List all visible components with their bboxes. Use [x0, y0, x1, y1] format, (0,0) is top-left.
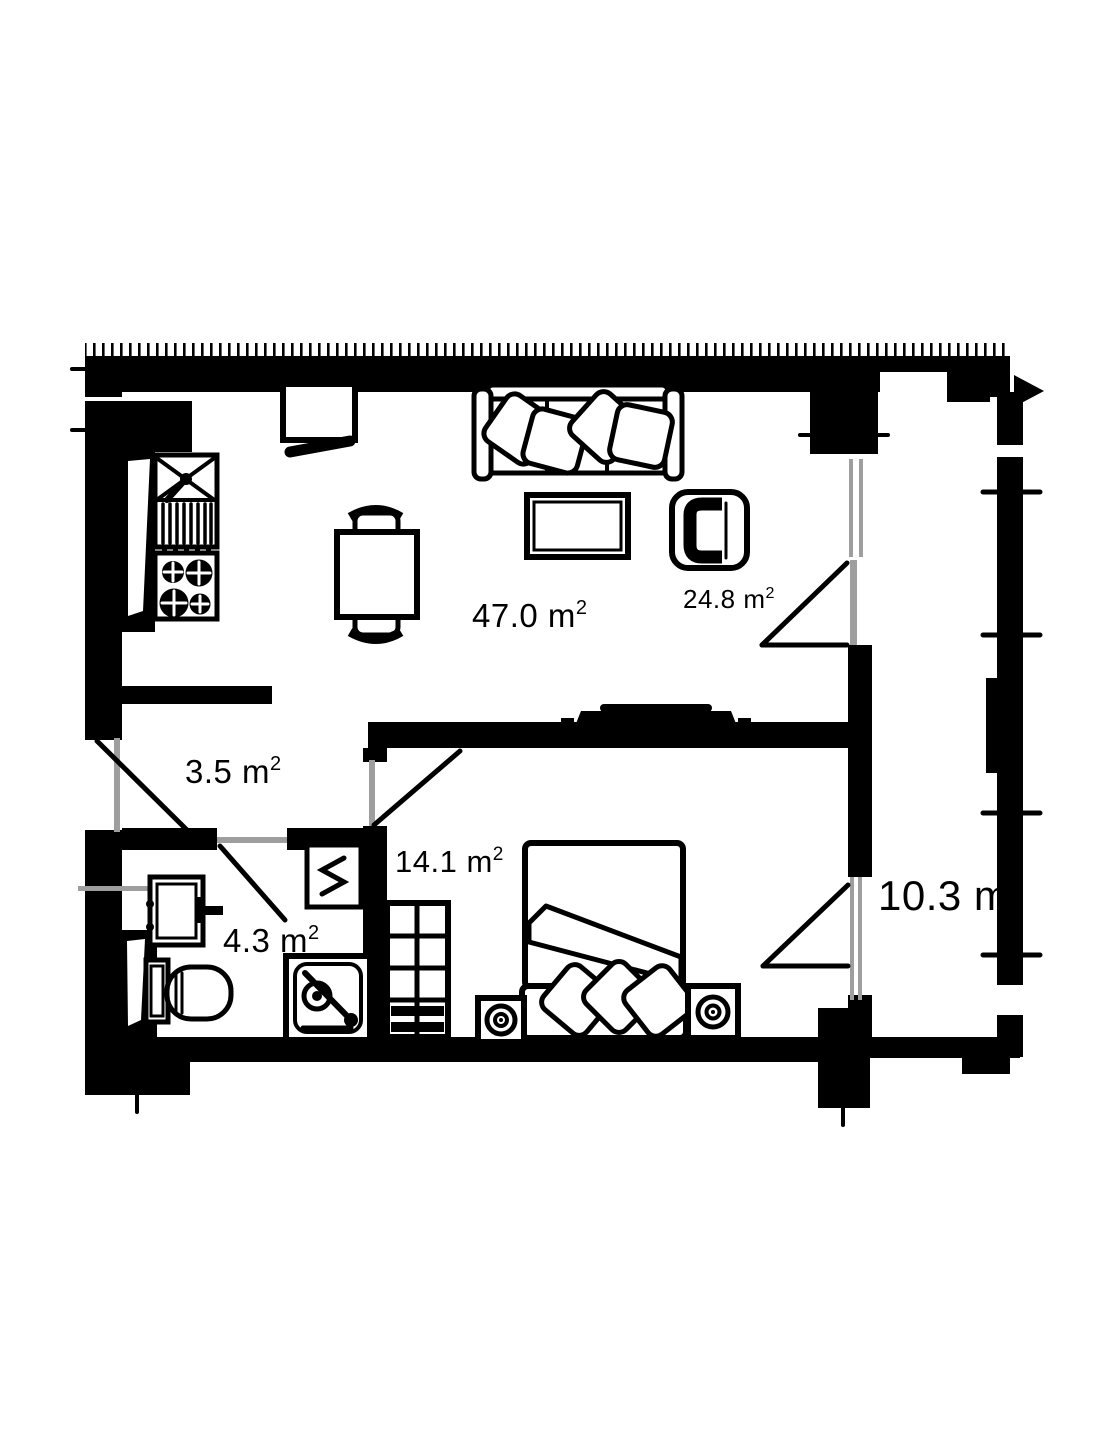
bed: [522, 843, 698, 1040]
burner: [160, 589, 189, 618]
bedroom-area-label: 14.1 m2: [395, 844, 504, 879]
floor-plan-drawing: 47.0 m2 24.8 m2 3.5 m2 14.1 m2 4.3 m2 10…: [0, 0, 1113, 1440]
kitchen-stub-wall: [122, 686, 272, 704]
armchair: [672, 492, 747, 568]
balcony-railing: [997, 392, 1023, 445]
shower: [286, 956, 370, 1040]
tv: [561, 704, 751, 731]
dining-set: [337, 510, 417, 640]
wall-joint-line: [85, 397, 192, 401]
burner: [186, 560, 213, 587]
top-right-opening: [880, 372, 947, 403]
balcony-length-label: 10.3 m: [878, 872, 1009, 919]
stove: [155, 553, 217, 619]
burner: [190, 594, 211, 615]
dimension-line: [78, 886, 156, 891]
hallway-area-label: 3.5 m2: [185, 753, 282, 790]
bathroom-door: [217, 837, 287, 920]
right-wall-pillar: [810, 382, 878, 454]
faucet: [203, 906, 223, 915]
nightstand: [478, 998, 524, 1042]
bedroom-window: [850, 877, 854, 1000]
bathroom-area-label: 4.3 m2: [223, 922, 320, 959]
bathroom-top-wall-left: [122, 828, 217, 850]
bedroom-balcony-door: [763, 885, 848, 966]
living-room-window: [859, 459, 863, 557]
top-wall-hatching: [85, 343, 1010, 356]
bathroom-sink: [146, 877, 223, 945]
kitchen-counter-block: [85, 401, 192, 452]
balcony: [848, 392, 1040, 1074]
pillow: [608, 403, 674, 469]
floor-plan: 47.0 m2 24.8 m2 3.5 m2 14.1 m2 4.3 m2 10…: [0, 0, 1113, 1440]
railing-post: [986, 678, 997, 773]
bottom-left-pier: [85, 1037, 190, 1095]
coffee-table: [527, 495, 628, 557]
wall-cabinet: [283, 384, 355, 452]
nightstand: [688, 986, 738, 1038]
kitchen-unit: [155, 455, 217, 619]
lounge-area-label: 24.8 m2: [683, 584, 775, 614]
right-wall-top-link: [845, 370, 870, 384]
washing-machine: [307, 845, 361, 907]
toilet: [146, 960, 231, 1022]
left-wall-lower: [85, 830, 122, 1060]
right-wall-middle: [848, 645, 872, 877]
bedroom-door-jamb: [363, 748, 387, 762]
dining-table: [337, 532, 417, 617]
balcony-bottom-wall: [848, 1037, 1020, 1058]
bedroom-door: [369, 751, 460, 826]
entrance-door: [97, 738, 189, 832]
sofa: [474, 385, 682, 479]
bedroom-window: [858, 877, 862, 1000]
burner: [162, 561, 184, 583]
right-wall-bottom: [848, 995, 872, 1040]
wardrobe: [387, 903, 448, 1037]
living-balcony-door: [762, 560, 857, 645]
balcony-bottom-step: [962, 1056, 1010, 1074]
living-room-window: [849, 459, 853, 557]
living-room-area-label: 47.0 m2: [472, 597, 588, 634]
